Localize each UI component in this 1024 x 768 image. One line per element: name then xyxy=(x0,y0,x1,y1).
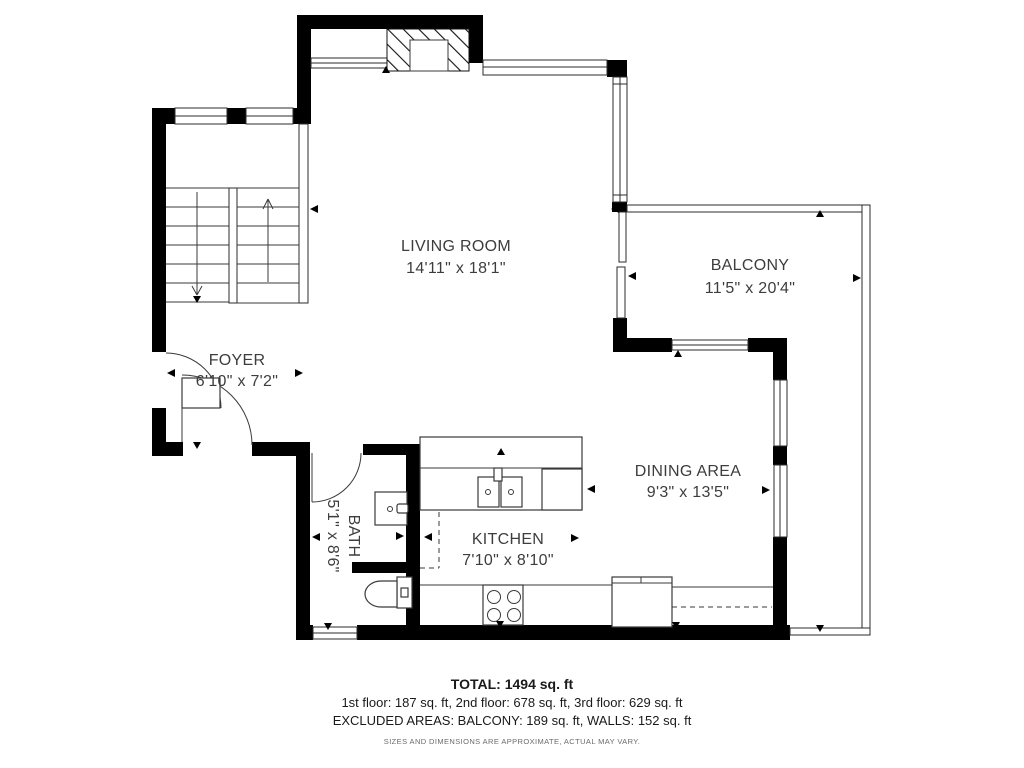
total-area: TOTAL: 1494 sq. ft xyxy=(0,676,1024,692)
window xyxy=(613,77,627,202)
bathroom-sink xyxy=(375,492,408,525)
staircase xyxy=(166,188,299,303)
room-label-dining: DINING AREA xyxy=(635,463,741,480)
window xyxy=(774,380,787,446)
fireplace-hatch xyxy=(387,29,469,71)
window xyxy=(175,108,227,124)
floor-areas: 1st floor: 187 sq. ft, 2nd floor: 678 sq… xyxy=(0,695,1024,710)
floorplan-svg: LIVING ROOM 14'11" x 18'1" BALCONY 11'5"… xyxy=(0,0,1024,768)
excluded-areas: EXCLUDED AREAS: BALCONY: 189 sq. ft, WAL… xyxy=(0,713,1024,728)
disclaimer-text: SIZES AND DIMENSIONS ARE APPROXIMATE, AC… xyxy=(0,737,1024,746)
room-label-balcony: BALCONY xyxy=(711,257,790,274)
toilet xyxy=(365,577,412,608)
room-dims-kitchen: 7'10" x 8'10" xyxy=(462,552,554,569)
room-dims-balcony: 11'5" x 20'4" xyxy=(705,280,795,297)
dishwasher xyxy=(542,469,582,510)
window xyxy=(672,340,748,350)
window xyxy=(483,60,607,75)
stove xyxy=(483,585,523,625)
fridge xyxy=(612,577,672,627)
summary-footer: TOTAL: 1494 sq. ft 1st floor: 187 sq. ft… xyxy=(0,676,1024,746)
room-dims-living: 14'11" x 18'1" xyxy=(406,260,506,277)
bath-door xyxy=(312,453,361,502)
room-dims-bath: 5'1" x 8'6" xyxy=(324,499,341,572)
kitchen-island xyxy=(420,437,582,510)
sink-basin xyxy=(501,477,522,507)
room-label-living: LIVING ROOM xyxy=(401,238,511,255)
faucet xyxy=(494,468,502,481)
room-labels: LIVING ROOM 14'11" x 18'1" BALCONY 11'5"… xyxy=(196,238,795,573)
window xyxy=(311,58,387,68)
window xyxy=(313,627,357,639)
room-dims-foyer: 6'10" x 7'2" xyxy=(196,373,278,390)
room-label-bath: BATH xyxy=(345,515,362,558)
window xyxy=(246,108,293,124)
window xyxy=(774,465,787,537)
stairs-up-arrow xyxy=(263,199,273,282)
floorplan-page: LIVING ROOM 14'11" x 18'1" BALCONY 11'5"… xyxy=(0,0,1024,768)
room-label-kitchen: KITCHEN xyxy=(472,531,544,548)
room-dims-dining: 9'3" x 13'5" xyxy=(647,484,729,501)
room-label-foyer: FOYER xyxy=(209,352,266,369)
